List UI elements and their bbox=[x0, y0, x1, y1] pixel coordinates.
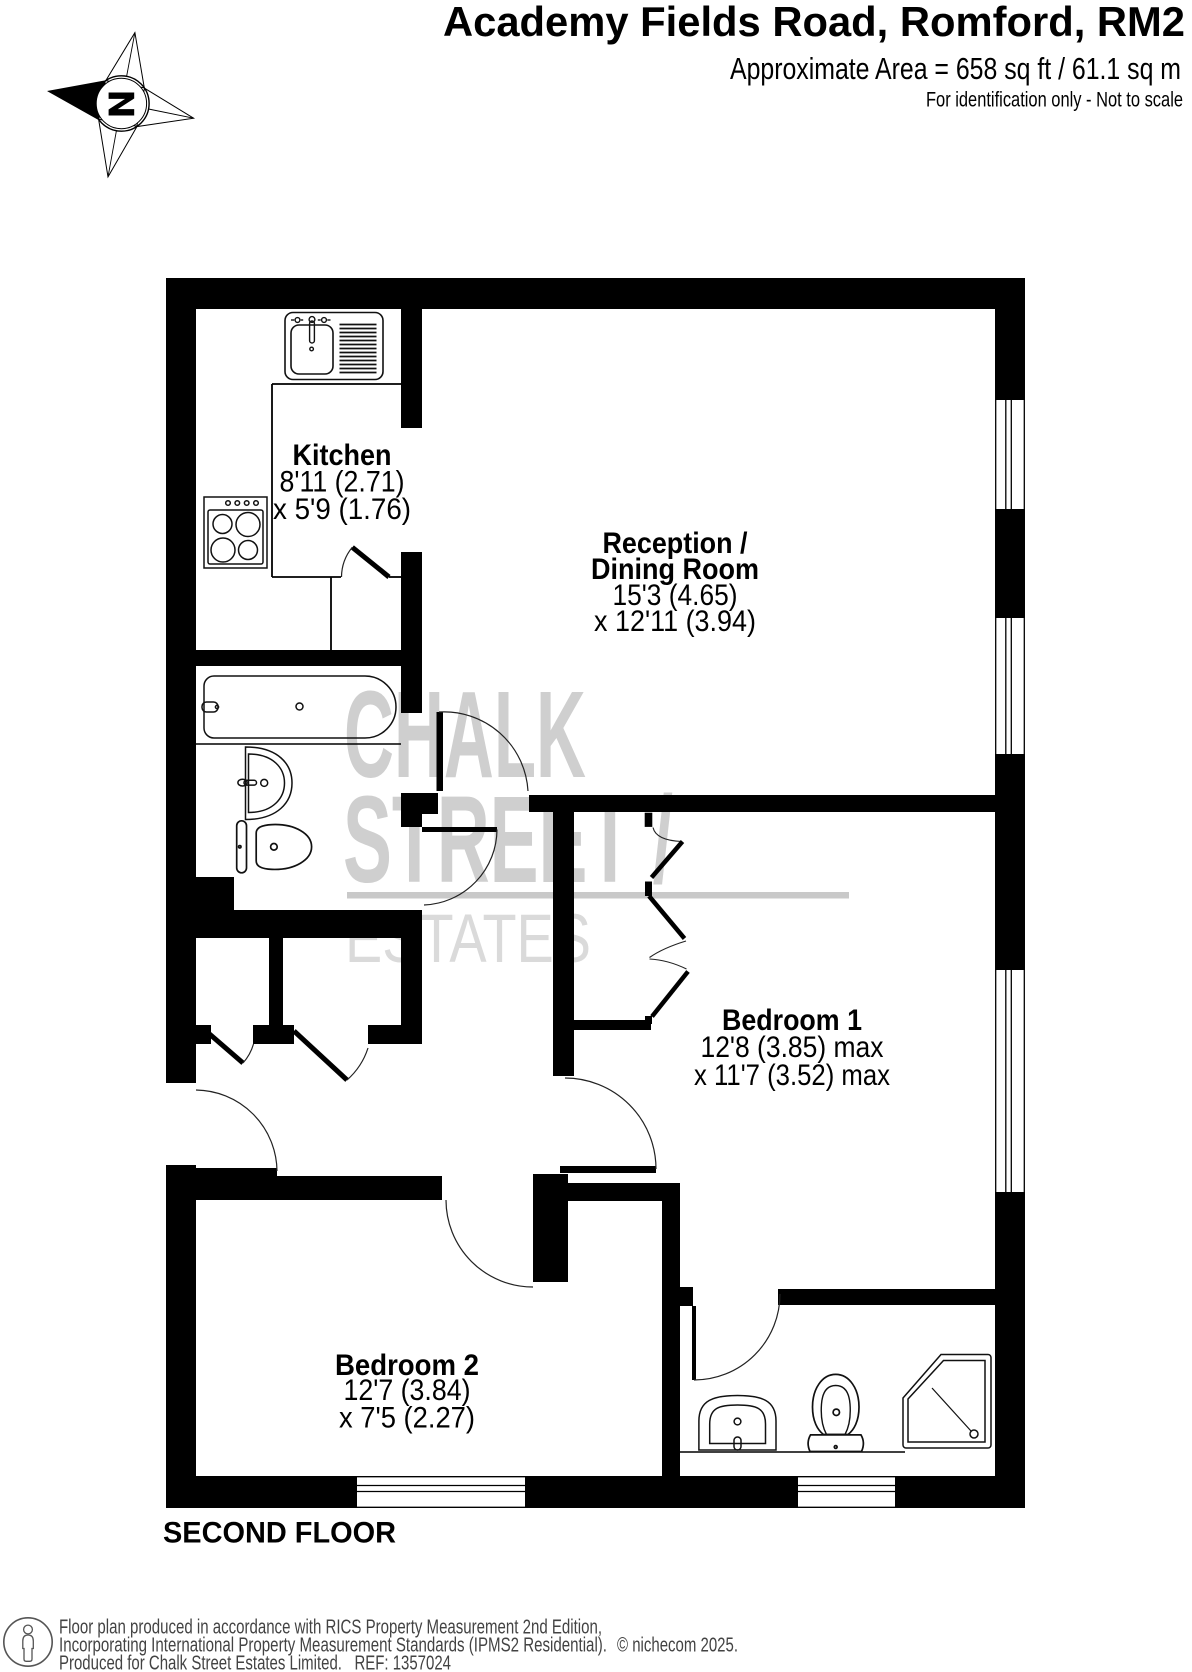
svg-text:x 11'7 (3.52) max: x 11'7 (3.52) max bbox=[694, 1059, 890, 1092]
svg-text:For identification only - Not: For identification only - Not to scale bbox=[926, 89, 1183, 112]
svg-text:STREET /: STREET / bbox=[343, 772, 673, 909]
svg-text:Produced for Chalk Street Esta: Produced for Chalk Street Estates Limite… bbox=[59, 1653, 451, 1672]
svg-text:SECOND FLOOR: SECOND FLOOR bbox=[163, 1517, 396, 1550]
svg-text:Approximate Area = 658 sq ft /: Approximate Area = 658 sq ft / 61.1 sq m bbox=[730, 52, 1181, 86]
svg-text:x 5'9 (1.76): x 5'9 (1.76) bbox=[273, 493, 411, 526]
svg-text:Academy Fields Road, Romford,: Academy Fields Road, Romford, RM2 bbox=[443, 0, 1185, 45]
svg-text:© nichecom 2025.: © nichecom 2025. bbox=[617, 1635, 738, 1657]
svg-text:x 7'5 (2.27): x 7'5 (2.27) bbox=[339, 1402, 475, 1435]
svg-text:x 12'11 (3.94): x 12'11 (3.94) bbox=[594, 605, 756, 638]
